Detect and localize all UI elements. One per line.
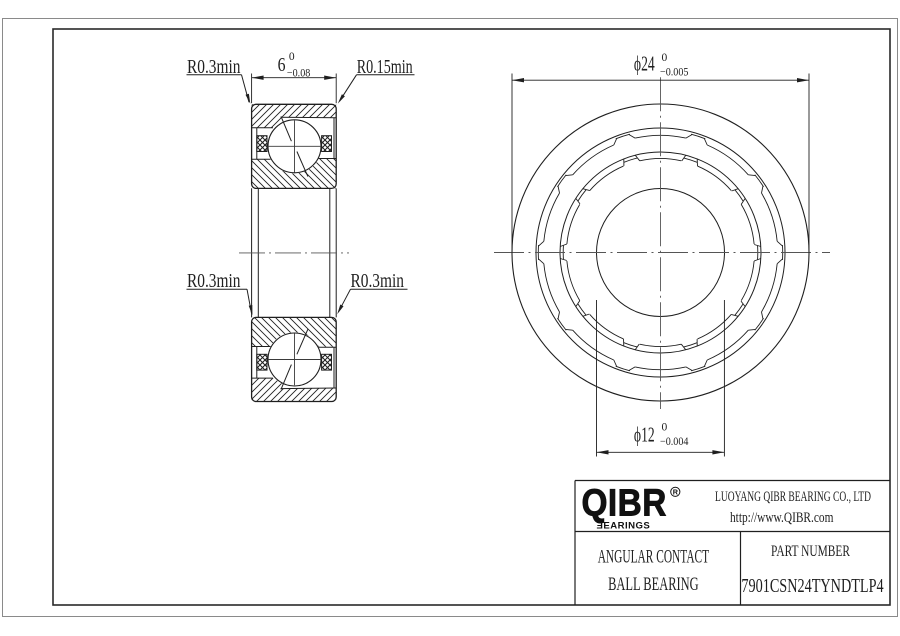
svg-text:ANGULAR CONTACT: ANGULAR CONTACT (598, 547, 710, 567)
svg-text:R: R (673, 488, 679, 497)
svg-text:QIBR: QIBR (582, 480, 667, 524)
svg-text:ϕ12: ϕ12 (634, 422, 655, 446)
svg-text:−0.004: −0.004 (660, 435, 689, 448)
svg-text:R0.15min: R0.15min (357, 55, 413, 77)
svg-text:6: 6 (278, 53, 286, 75)
svg-text:BALL BEARING: BALL BEARING (608, 575, 699, 595)
svg-text:R0.3min: R0.3min (187, 55, 240, 77)
svg-text:R0.3min: R0.3min (351, 269, 404, 291)
svg-text:LUOYANG QIBR BEARING CO., LTD: LUOYANG QIBR BEARING CO., LTD (715, 488, 871, 505)
svg-text:0: 0 (289, 51, 295, 63)
svg-text:7901CSN24TYNDTLP4: 7901CSN24TYNDTLP4 (741, 575, 884, 597)
svg-text:0: 0 (662, 52, 668, 64)
svg-text:PART NUMBER: PART NUMBER (771, 542, 851, 559)
svg-text:−0.08: −0.08 (287, 67, 310, 80)
svg-text:http://www.QIBR.com: http://www.QIBR.com (730, 509, 833, 526)
svg-text:R0.3min: R0.3min (187, 269, 240, 291)
svg-text:ƎEARINGS: ƎEARINGS (597, 521, 651, 532)
svg-text:0: 0 (662, 421, 668, 433)
svg-text:ϕ24: ϕ24 (634, 52, 655, 76)
svg-text:−0.005: −0.005 (660, 66, 688, 79)
